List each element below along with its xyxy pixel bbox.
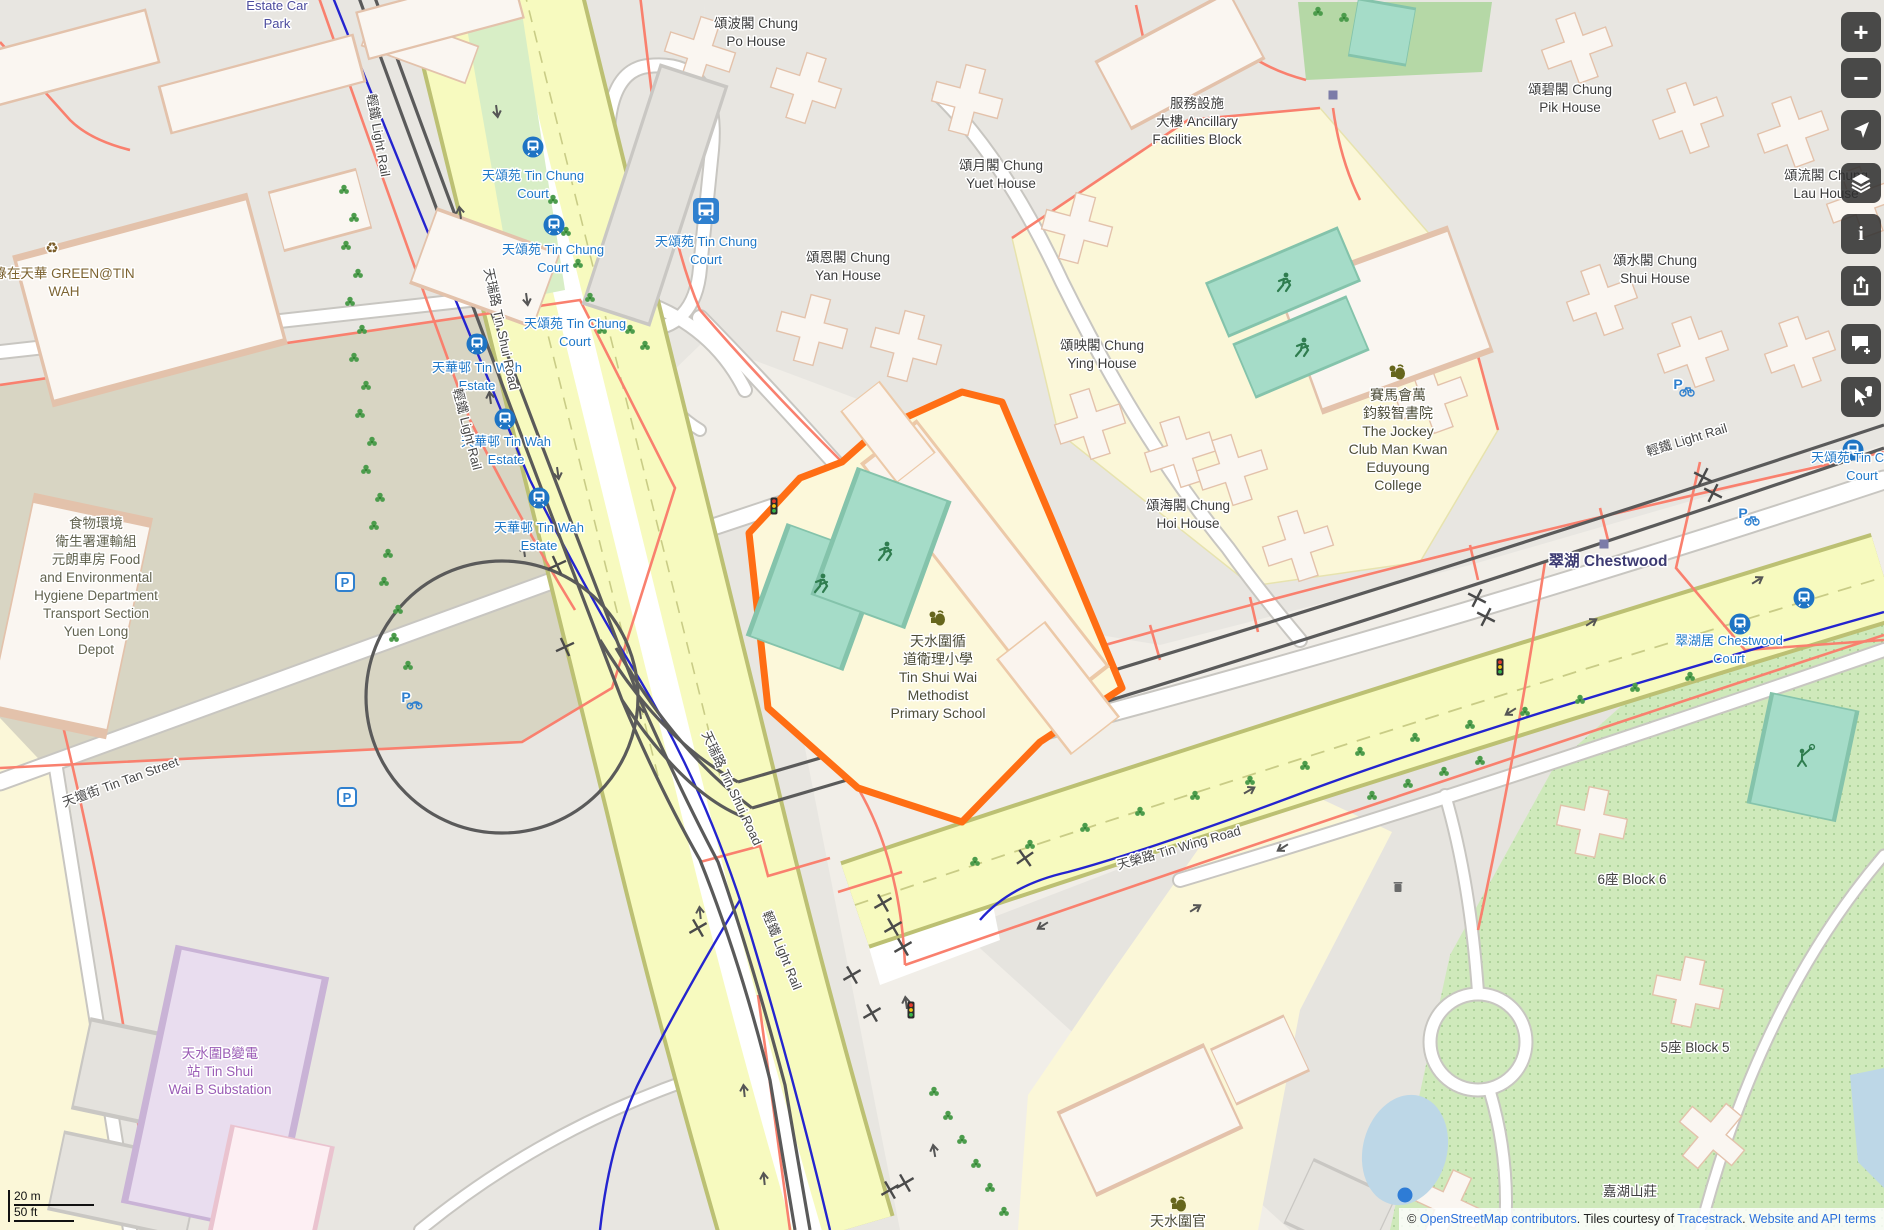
terms-link[interactable]: Website and API terms [1749,1212,1876,1226]
copyright-symbol: © [1407,1212,1420,1226]
add-note-button[interactable] [1841,324,1881,364]
zoom-in-button[interactable]: + [1841,12,1881,52]
map-label: 5座 Block 5 [1660,1040,1729,1055]
bus-terminus-icon [693,198,719,224]
locate-button[interactable] [1841,110,1881,150]
location-arrow-icon [1851,120,1871,140]
traffic-light-icon [908,1002,915,1019]
recycling-icon [45,240,58,257]
light-rail-stop-icon [1794,588,1815,609]
scale-bar: 20 m 50 ft [8,1190,94,1222]
tracestrack-link[interactable]: Tracestrack [1677,1212,1742,1226]
layers-icon [1850,172,1872,194]
query-features-button[interactable]: ? [1841,377,1881,417]
small-square-icon [1329,91,1338,100]
plus-icon: + [1853,19,1868,45]
light-rail-stop-icon [1730,614,1751,635]
location-dot-icon [1398,1188,1413,1203]
note-icon [1850,333,1872,355]
zoom-out-button[interactable]: − [1841,58,1881,98]
layers-button[interactable] [1841,163,1881,203]
light-rail-stop-icon [544,215,565,236]
share-button[interactable] [1841,266,1881,306]
parking-icon [336,573,354,591]
scale-imperial: 50 ft [14,1206,74,1222]
share-icon [1851,276,1871,296]
attribution: © OpenStreetMap contributors. Tiles cour… [1399,1208,1884,1230]
info-button[interactable]: i [1841,214,1881,254]
map-label: 嘉湖山莊 [1603,1184,1657,1199]
info-icon: i [1858,224,1864,244]
light-rail-stop-icon [529,488,550,509]
light-rail-stop-icon [495,409,516,430]
traffic-light-icon [1497,659,1504,676]
svg-text:?: ? [1866,386,1872,398]
light-rail-stop-icon [523,137,544,158]
attribution-text: . Tiles courtesy of [1577,1212,1678,1226]
map-label: 6座 Block 6 [1597,872,1666,887]
waste-basket-icon [1394,882,1403,892]
parking-icon [338,788,356,806]
minus-icon: − [1853,65,1868,91]
light-rail-stop-icon [467,334,488,355]
osm-contributors-link[interactable]: OpenStreetMap contributors [1420,1212,1577,1226]
small-square-icon [1600,540,1609,549]
map-label: 翠湖 Chestwood [1549,552,1668,570]
scale-metric: 20 m [14,1190,94,1206]
query-cursor-icon: ? [1850,386,1872,408]
traffic-light-icon [771,498,778,515]
map-label: 天水圍官 [1150,1213,1206,1229]
map-viewport[interactable]: P P P ♻ [0,0,1884,1230]
map-canvas[interactable]: P P P ♻ [0,0,1884,1230]
